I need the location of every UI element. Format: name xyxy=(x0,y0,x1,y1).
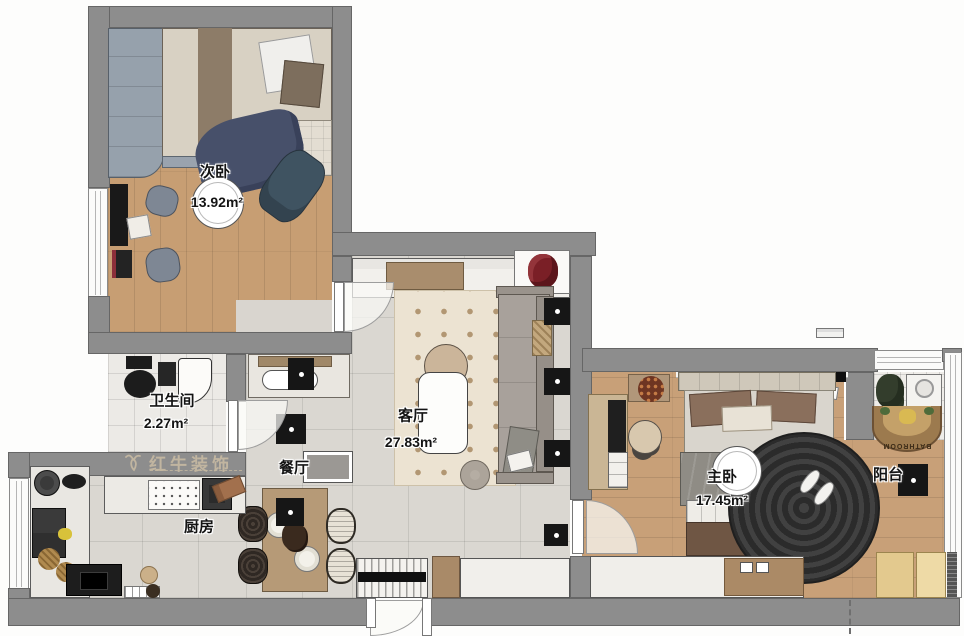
wall-bottom-right xyxy=(428,598,960,626)
serving-tray xyxy=(304,452,352,482)
balcony-rug-bird xyxy=(899,409,916,424)
wall-bedroom-right xyxy=(332,6,352,238)
floor-pouf xyxy=(460,460,490,490)
sofa-pillow-pattern xyxy=(532,320,552,356)
master-bedroom-area: 17.45m² xyxy=(696,492,748,508)
console-handle-1 xyxy=(740,562,753,573)
living-room-area: 27.83m² xyxy=(385,434,437,450)
entry-bench-bar xyxy=(358,572,426,582)
master-pillow-small xyxy=(722,405,773,432)
vanity-mat xyxy=(288,358,314,390)
side-table-1 xyxy=(544,298,570,325)
kitchen-range-inner xyxy=(80,572,108,590)
balcony-rug-leaf-1 xyxy=(880,407,890,415)
wall-bedroom-top xyxy=(88,6,352,28)
property-dashed-line xyxy=(849,600,853,634)
bathroom-door xyxy=(228,400,238,452)
fruit-plate xyxy=(140,566,158,584)
pendant-light-dining xyxy=(276,498,304,526)
red-shelf-item xyxy=(112,250,132,278)
dining-chair-right-2 xyxy=(326,548,356,584)
wall-master-balcony-divider xyxy=(844,372,874,440)
dressing-chair xyxy=(628,420,662,454)
bull-icon xyxy=(122,452,144,474)
washer-door xyxy=(915,379,934,398)
wardrobe xyxy=(108,28,164,178)
kitchen-sink-pan xyxy=(34,470,60,496)
dining-plate-2 xyxy=(294,546,320,572)
window-secondary-bedroom xyxy=(88,188,108,298)
balcony-cabinet-2 xyxy=(916,552,946,598)
side-table-2 xyxy=(544,368,570,395)
wall-bathroom-right xyxy=(226,354,246,402)
wall-shelf-wood xyxy=(386,262,464,290)
wall-living-right-lower xyxy=(570,556,592,598)
balcony-rug-leaf-2 xyxy=(924,407,934,415)
kitchen-appliance-dotted xyxy=(148,480,200,510)
dining-chair-right-1 xyxy=(326,508,356,544)
wall-bedroom-bottom xyxy=(88,332,352,354)
secondary-bed-pad xyxy=(280,60,324,108)
entry-wood-panel xyxy=(432,556,460,598)
clay-pot xyxy=(146,584,160,598)
dining-food xyxy=(282,522,306,550)
living-room-label: 客厅 xyxy=(398,405,428,426)
watermark-text: 红牛装饰 xyxy=(149,450,233,475)
lemon-bowl xyxy=(58,528,72,540)
floor-plan-canvas: BATHROOM 次卧 13.92m² 卫生间 2.27m² 客厅 27.83m… xyxy=(0,0,964,636)
side-table-3 xyxy=(544,440,570,467)
living-console xyxy=(460,558,570,598)
wall-kitchen-left-cap-top xyxy=(8,452,30,478)
balcony-plant xyxy=(876,374,904,408)
red-plant xyxy=(528,254,558,288)
side-table-4 xyxy=(544,524,568,546)
entrance-door-swing xyxy=(370,600,424,636)
brand-watermark: 红牛装饰 xyxy=(122,450,233,475)
bathroom-label: 卫生间 xyxy=(149,390,194,411)
wall-master-top xyxy=(582,348,878,372)
balcony-cabinet-1 xyxy=(876,552,914,598)
desk-papers xyxy=(126,214,151,239)
toilet-tank xyxy=(126,356,152,369)
kitchen-label: 厨房 xyxy=(184,516,214,537)
dresser-drawers xyxy=(608,452,628,488)
console-handle-2 xyxy=(756,562,769,573)
dining-room-label: 餐厅 xyxy=(279,457,309,478)
sofa-armrest-bottom xyxy=(496,472,554,484)
secondary-bedroom-area: 13.92m² xyxy=(191,194,243,210)
potted-flower xyxy=(638,376,664,402)
wall-bedroom-left-upper xyxy=(88,6,110,188)
bathroom-area: 2.27m² xyxy=(144,415,188,431)
balcony-rack xyxy=(947,552,957,598)
kitchen-pot-oval xyxy=(62,474,86,489)
master-bedroom-door xyxy=(572,500,584,554)
master-headboard xyxy=(678,372,836,391)
wall-living-left-stub xyxy=(332,256,352,282)
wall-bottom-left xyxy=(8,598,368,626)
balcony-label: 阳台 xyxy=(873,464,903,485)
entrance-door-jamb-right xyxy=(422,598,432,636)
watermark-caption-line xyxy=(150,470,242,471)
outdoor-ac-unit xyxy=(816,328,844,338)
secondary-bedroom-label: 次卧 xyxy=(200,161,230,182)
dresser-dark-panel xyxy=(608,400,626,452)
window-balcony-top xyxy=(874,350,944,370)
bedroom-entry-mat xyxy=(236,300,332,332)
balcony-rug-text: BATHROOM xyxy=(883,442,932,449)
entrance-door-jamb-left xyxy=(366,598,376,628)
master-bedroom-label: 主卧 xyxy=(707,466,737,487)
window-kitchen xyxy=(9,478,29,590)
dining-chair-left-2 xyxy=(238,548,268,584)
bathroom-cabinet xyxy=(158,362,176,386)
desk xyxy=(110,184,128,246)
secondary-bedroom-door xyxy=(334,282,344,332)
